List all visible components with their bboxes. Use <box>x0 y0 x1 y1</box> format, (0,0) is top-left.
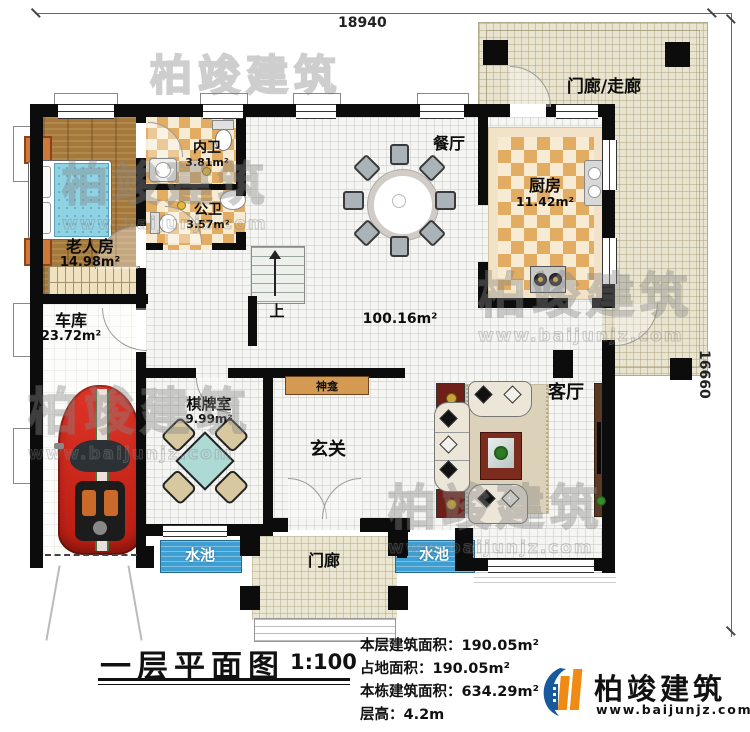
sofa-top <box>468 381 532 417</box>
wall <box>136 546 154 568</box>
right-dimension-line <box>731 13 732 637</box>
burner <box>549 273 562 286</box>
room-label-elder-room: 老人房14.98m² <box>60 238 120 270</box>
room-label-garage: 车库23.72m² <box>41 312 101 344</box>
wall <box>136 268 146 310</box>
wall <box>146 243 163 250</box>
car-windshield <box>70 440 130 472</box>
wall <box>146 184 246 190</box>
room-label-public-bath: 公卫3.57m² <box>186 203 229 231</box>
engine-part <box>82 490 96 516</box>
window <box>58 104 114 119</box>
room-label-corridor: 门廊/走廊 <box>567 78 641 97</box>
sofa-bottom <box>468 484 528 524</box>
porch-column <box>240 586 260 610</box>
window-sill <box>474 572 616 584</box>
room-label-entry: 玄关 <box>310 440 346 460</box>
car-mirror <box>54 443 64 449</box>
living-bay-floor <box>473 528 602 558</box>
room-label-inner-bath: 内卫3.81m² <box>185 141 228 169</box>
window <box>163 525 227 537</box>
wall <box>478 298 568 308</box>
title-underline-thin <box>98 684 350 685</box>
car-engine-bay <box>75 481 125 541</box>
car <box>58 385 142 555</box>
room-label-porch: 门廊 <box>308 552 340 570</box>
top-dimension-label: 18940 <box>338 15 387 31</box>
stairs-arrow-head <box>269 250 281 259</box>
window <box>556 104 598 119</box>
wall <box>236 117 246 196</box>
stat-floor-height: 层高：4.2m <box>360 703 444 724</box>
basin <box>155 162 171 178</box>
engine-part <box>93 521 107 535</box>
wall <box>478 117 488 205</box>
wall <box>263 368 273 530</box>
driveway-line <box>127 565 142 640</box>
burner <box>534 273 547 286</box>
wall <box>602 340 615 573</box>
top-dimension-line <box>35 13 731 14</box>
plant <box>596 496 606 506</box>
sink <box>149 158 177 182</box>
stairs-up-label: 上 <box>269 303 284 320</box>
dining-chair <box>390 144 409 165</box>
wall <box>136 158 146 226</box>
porch-column <box>388 528 408 556</box>
room-label-kitchen: 厨房11.42m² <box>516 177 574 209</box>
basin <box>588 167 601 180</box>
window <box>602 238 617 284</box>
bed-mattress <box>54 163 109 237</box>
stove <box>530 266 566 293</box>
wall <box>146 368 196 378</box>
porch-floor <box>252 536 397 620</box>
garage-door-dashed <box>45 554 137 556</box>
coffee-table <box>480 432 522 480</box>
plant <box>494 446 508 460</box>
stat-floor-area: 本层建筑面积：190.05m² <box>360 634 539 655</box>
wall <box>263 518 288 532</box>
title-underline <box>98 678 350 681</box>
kitchen-sink <box>584 160 604 206</box>
table-center <box>392 194 406 208</box>
wall <box>553 350 573 378</box>
wall <box>136 117 146 123</box>
wall <box>212 243 246 250</box>
room-label-dining: 餐厅 <box>433 135 465 153</box>
window <box>602 140 617 190</box>
window <box>488 559 594 573</box>
basin <box>588 185 601 198</box>
column <box>483 40 508 65</box>
wall <box>248 296 257 346</box>
pool-left-label: 水池 <box>185 547 215 564</box>
plant <box>446 499 457 510</box>
right-dimension-label: 16660 <box>696 350 712 399</box>
porch-column <box>240 528 260 556</box>
shrine-shelf: 神龛 <box>285 376 369 395</box>
shrine-label: 神龛 <box>316 378 338 394</box>
porch-column <box>388 586 408 610</box>
column <box>665 42 690 67</box>
window <box>296 104 336 119</box>
stat-land-area: 占地面积：190.05m² <box>360 657 510 678</box>
window <box>203 104 243 119</box>
tv-screen <box>597 422 601 474</box>
company-logo: 柏竣建筑 www.baijunjz.com <box>538 660 748 722</box>
logo-url: www.baijunjz.com <box>596 702 750 717</box>
column <box>670 358 692 380</box>
dining-chair <box>435 191 456 210</box>
wall <box>136 352 146 546</box>
wall <box>30 294 148 304</box>
dining-chair <box>343 191 364 210</box>
hall-area-label: 100.16m² <box>363 312 438 328</box>
stat-total-area: 本栋建筑面积：634.29m² <box>360 680 539 701</box>
room-label-chess: 棋牌室9.99m² <box>185 396 232 426</box>
engine-part <box>104 490 118 516</box>
logo-icon <box>538 662 586 718</box>
window <box>420 104 464 119</box>
pool-right-label: 水池 <box>419 546 449 563</box>
stairs-arrow <box>274 256 276 296</box>
end-table <box>436 489 465 518</box>
driveway-line <box>45 565 60 640</box>
dining-chair <box>390 236 409 257</box>
room-label-living: 客厅 <box>548 383 584 403</box>
floor-plan-image: { "dim_top": "18940", "dim_right": "1666… <box>0 0 750 732</box>
plan-scale: 1:100 <box>290 650 357 674</box>
